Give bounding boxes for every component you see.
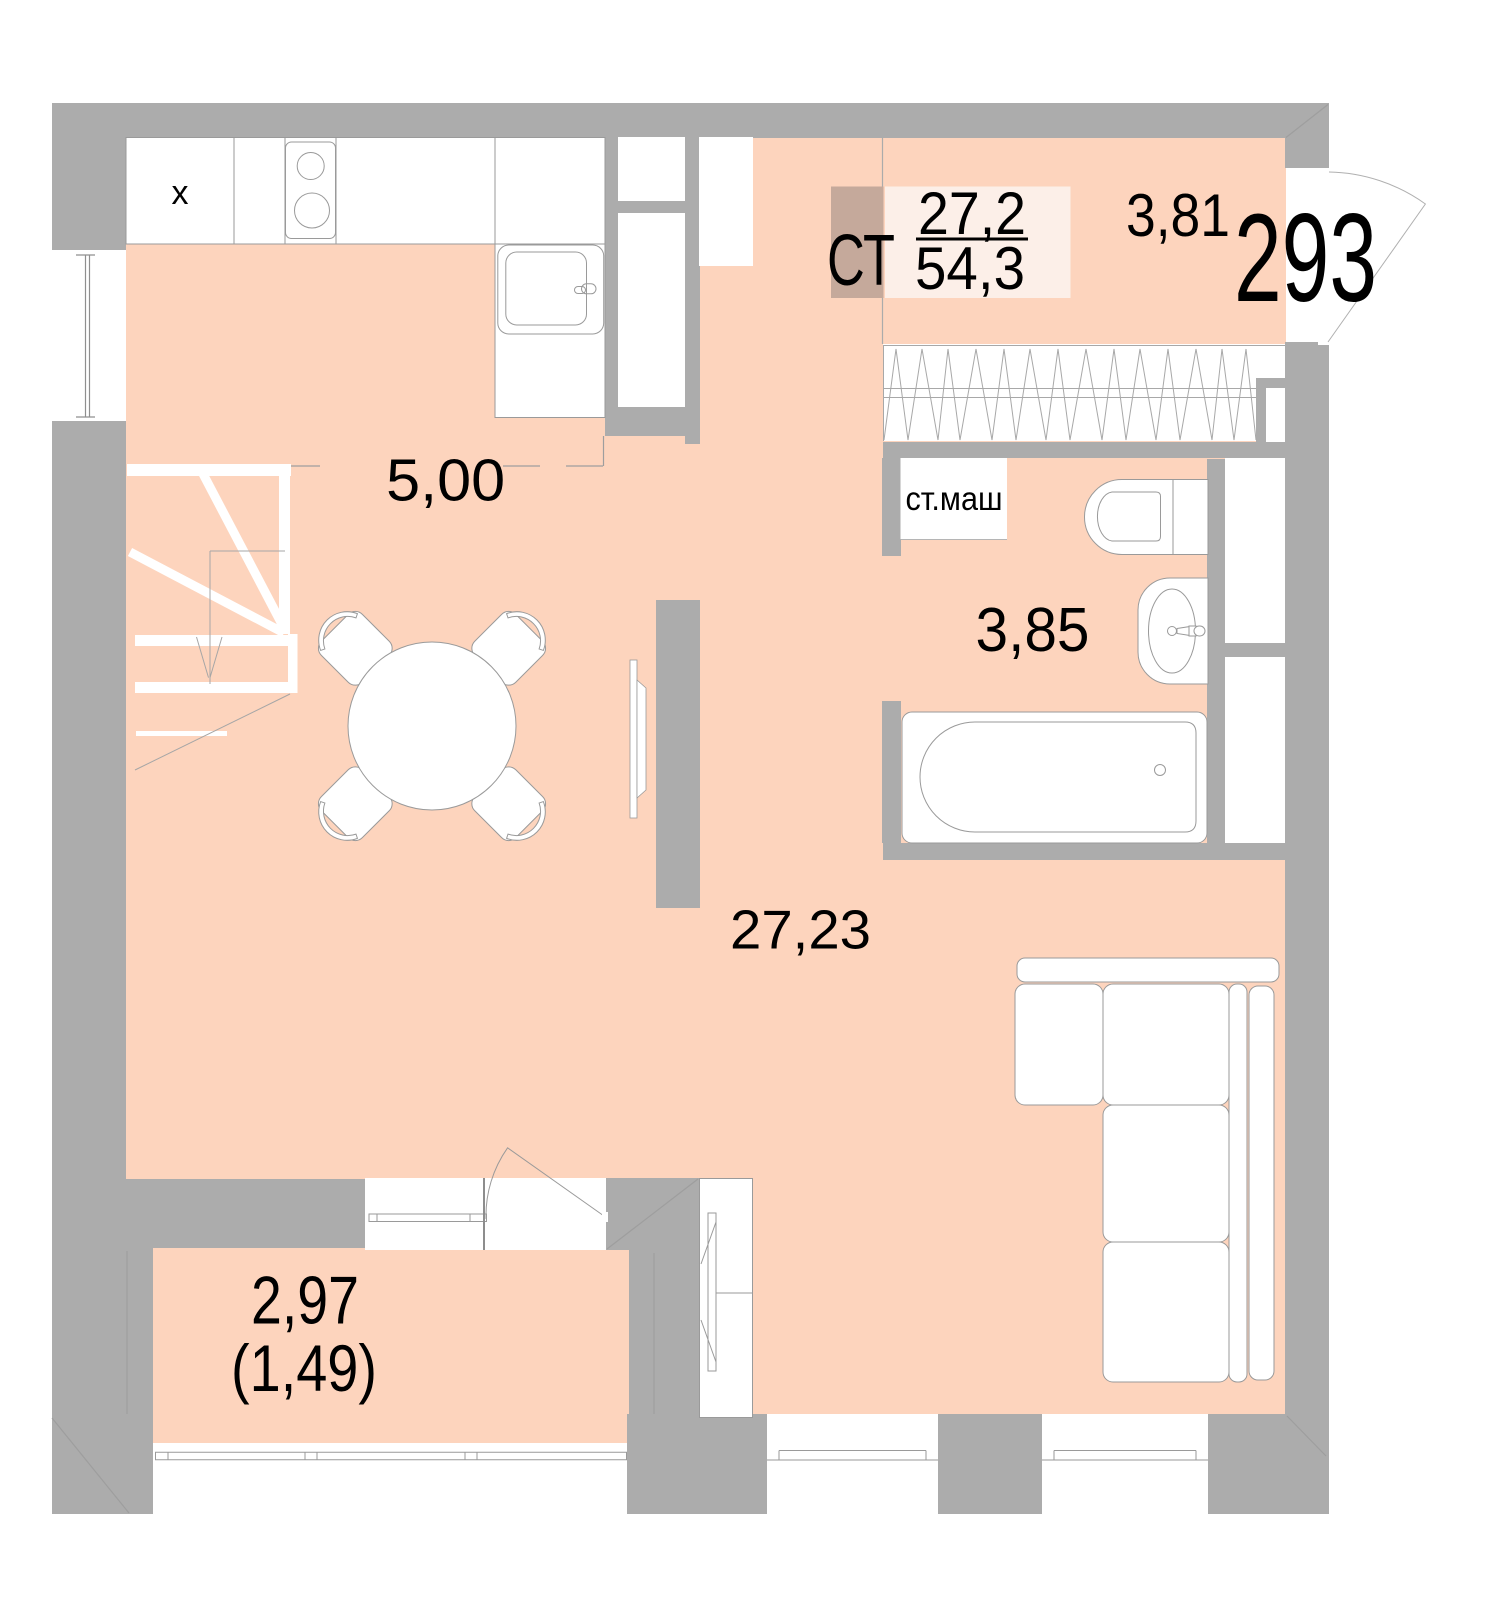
svg-text:5,00: 5,00 bbox=[386, 448, 505, 514]
svg-text:(1,49): (1,49) bbox=[231, 1331, 377, 1405]
svg-text:3,81: 3,81 bbox=[1126, 182, 1230, 249]
svg-text:54,3: 54,3 bbox=[915, 235, 1025, 302]
svg-text:ст.маш: ст.маш bbox=[906, 480, 1003, 517]
svg-text:293: 293 bbox=[1234, 189, 1377, 328]
svg-text:3,85: 3,85 bbox=[976, 596, 1090, 665]
svg-text:2,97: 2,97 bbox=[251, 1263, 359, 1339]
svg-text:СТ: СТ bbox=[827, 221, 895, 301]
svg-text:27,23: 27,23 bbox=[730, 899, 871, 961]
svg-text:x: x bbox=[172, 174, 189, 212]
